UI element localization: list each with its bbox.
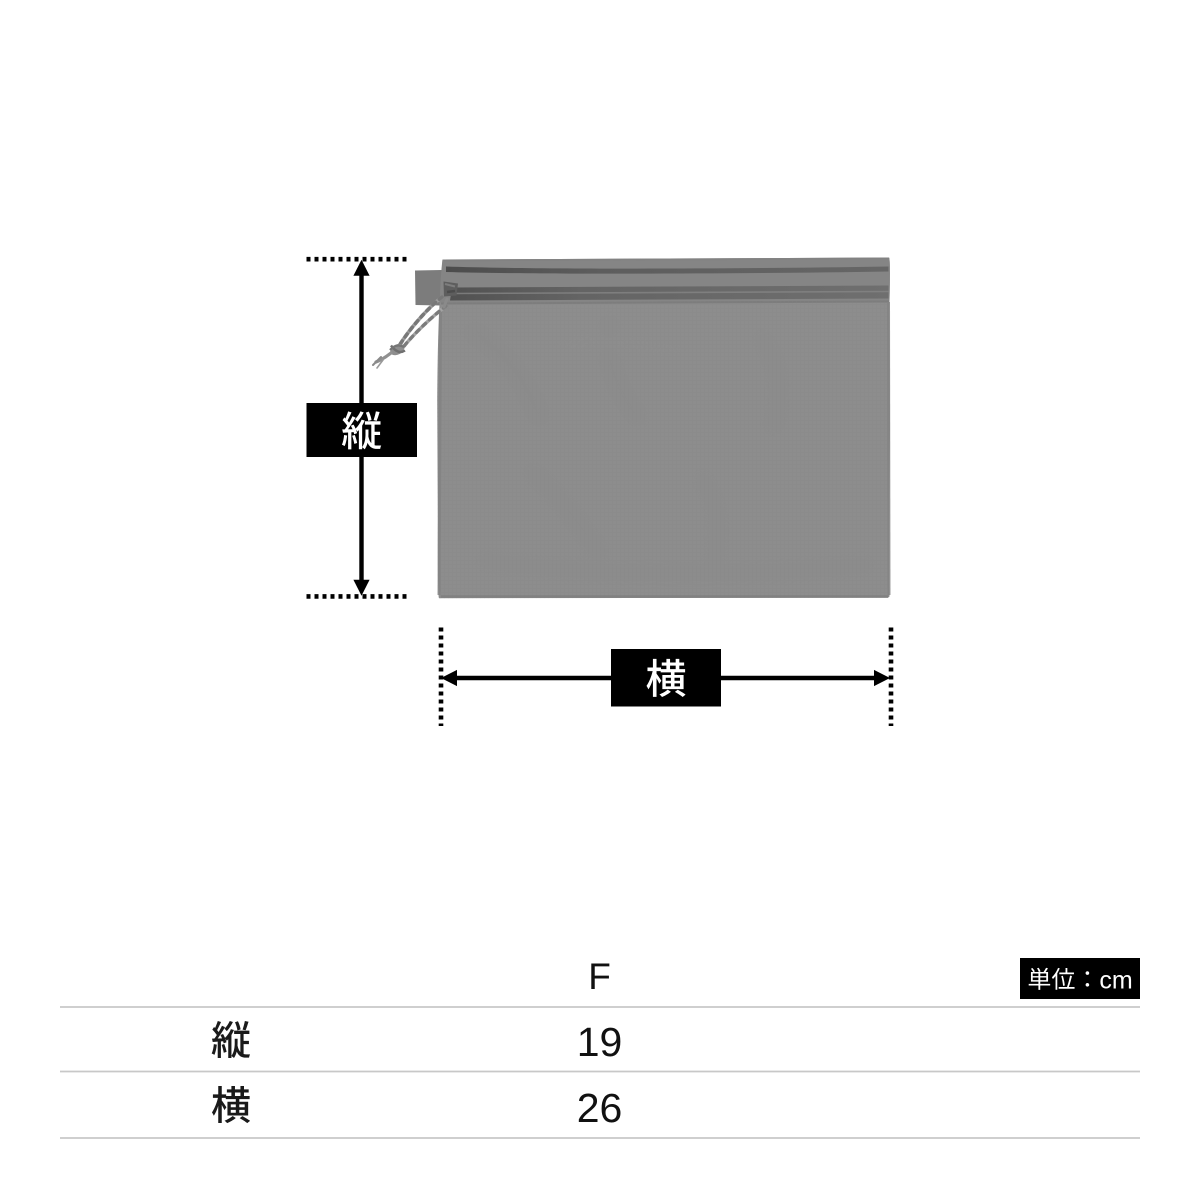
svg-text:26: 26: [577, 1085, 623, 1131]
svg-text:F: F: [588, 956, 611, 997]
svg-text:19: 19: [577, 1019, 623, 1065]
svg-text:cm: cm: [1099, 967, 1132, 995]
